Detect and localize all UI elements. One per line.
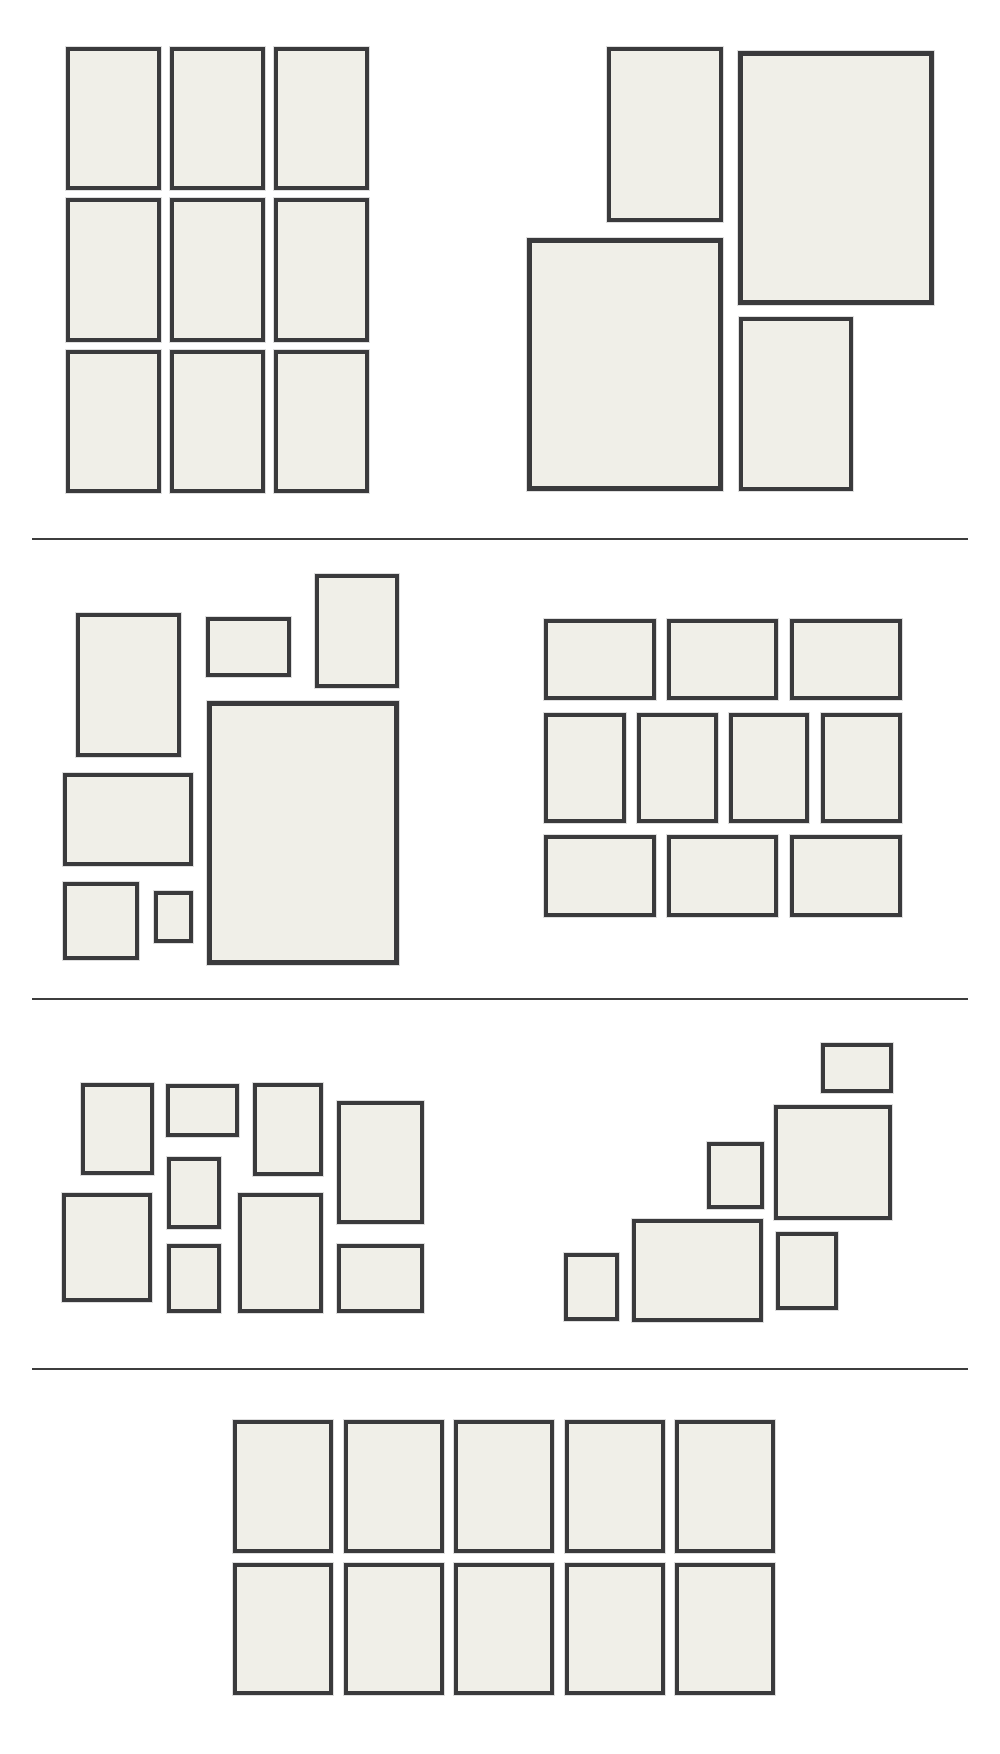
layout-d-group-grid-2x5	[0, 0, 1000, 1754]
d-grid-r2c3-frame	[454, 1563, 554, 1695]
divider-1	[32, 538, 968, 540]
d-grid-r1c1-frame	[233, 1420, 333, 1553]
d-grid-r1c5-frame	[675, 1420, 775, 1553]
d-grid-r1c3-frame	[454, 1420, 554, 1553]
d-grid-r1c2-frame	[344, 1420, 444, 1553]
divider-3	[32, 1368, 968, 1370]
d-grid-r2c4-frame	[565, 1563, 665, 1695]
d-grid-r2c2-frame	[344, 1563, 444, 1695]
d-grid-r2c5-frame	[675, 1563, 775, 1695]
d-grid-r1c4-frame	[565, 1420, 665, 1553]
canvas	[0, 0, 1000, 1754]
divider-2	[32, 998, 968, 1000]
d-grid-r2c1-frame	[233, 1563, 333, 1695]
section-layout-d	[0, 0, 1000, 1754]
